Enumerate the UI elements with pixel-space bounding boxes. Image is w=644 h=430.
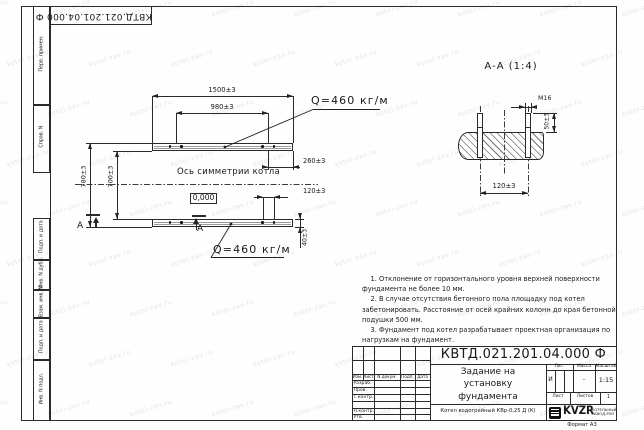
centerline (504, 110, 505, 174)
tb-title-line: Задание на (430, 366, 546, 378)
tb-col-data: Дата (415, 375, 430, 380)
tb-line (400, 346, 401, 421)
tb-line (352, 414, 430, 415)
tb-row-utv: Утв. (354, 415, 364, 420)
tb-line (430, 404, 546, 405)
dim-spacing: 120±3 (487, 183, 521, 190)
logo-wave (551, 412, 559, 413)
tb-line (352, 401, 430, 402)
format-note: Формат А3 (550, 423, 614, 429)
tb-title-line: фундамента (430, 391, 546, 403)
dim-protrusion: 50±3 (545, 101, 552, 141)
tb-product-name: Котел водогрейный КВр-0,25 Д (К) (431, 409, 545, 415)
anchor-bolt (525, 113, 531, 158)
tb-lit-value: И (546, 377, 555, 384)
tb-line (415, 346, 416, 421)
note-line: подушки 500 мм. (362, 315, 614, 325)
tb-line (564, 370, 565, 392)
note-line: забетонировать. Расстояние от осей крайн… (362, 305, 614, 315)
dim-arrow (531, 105, 537, 109)
tb-mass-label: Масса (573, 365, 595, 370)
tb-row-razrab: Разраб. (354, 381, 372, 386)
tb-col-podp: Подп. (400, 375, 415, 380)
note-line: фундамента не более 10 мм. (362, 284, 614, 294)
tb-sheets-value: 1 (600, 395, 617, 400)
dim-arrow (522, 191, 528, 195)
anchor-bolt (477, 113, 483, 158)
tb-row-tkontr: Т.контр. (354, 395, 374, 400)
tb-row-prov: Пров. (354, 388, 367, 393)
concrete-foundation (458, 132, 544, 161)
kvzr-logo-icon (549, 407, 561, 419)
tb-title: Задание на установку фундамента (430, 366, 546, 403)
tb-scale-value: 1:15 (595, 377, 617, 384)
tb-col-list: Лист (363, 375, 374, 380)
tb-row-nkontr: Н.контр. (354, 409, 375, 414)
note-line: 2. В случае отсутствия бетонного пола пл… (362, 294, 614, 304)
tb-mass-value: - (573, 377, 595, 384)
bolt-thread-line (477, 127, 483, 128)
tb-scale-label: Масштаб (595, 365, 617, 370)
dim-line (480, 193, 528, 194)
tb-line (546, 370, 617, 371)
section-title: А-А (1:4) (476, 61, 546, 72)
dim-arrow (480, 191, 486, 195)
tb-sheets-label: Листов (570, 395, 600, 400)
tb-line (555, 370, 556, 392)
tb-col-izm: Изм. (352, 375, 363, 380)
company-name: КОТЕЛЬНЫЙ ЗАВОД-РЭП (592, 408, 617, 417)
drawing-sheet: kotel-zav.rukotel-zav.rukotel-zav.rukote… (0, 0, 644, 430)
tb-line (374, 346, 375, 421)
tb-col-ndokum: N докум. (374, 375, 400, 380)
notes-block: 1. Отклонение от горизонтального уровня … (362, 274, 614, 345)
note-line: 1. Отклонение от горизонтального уровня … (362, 274, 614, 284)
logo-wave (551, 409, 559, 410)
note-line: 3. Фундамент под котел разрабатывает про… (362, 325, 614, 335)
bolt-thread-line (525, 127, 531, 128)
ext-line (525, 103, 526, 113)
tb-doc-number: КВТД.021.201.04.000 Ф (432, 348, 615, 362)
kvzr-logo-text: KVZR (563, 404, 594, 417)
logo-wave (551, 414, 559, 415)
dim-arrow (552, 113, 556, 119)
tb-line (546, 392, 617, 393)
company-line: ЗАВОД-РЭП (592, 412, 617, 417)
tb-lit-label: Лит. (546, 365, 573, 370)
note-line: нагрузкам на фундамент. (362, 335, 614, 345)
tb-title-line: установку (430, 378, 546, 390)
tb-sheet-label: Лист (546, 395, 570, 400)
dim-arrow (519, 105, 525, 109)
dim-arrow (552, 126, 556, 132)
